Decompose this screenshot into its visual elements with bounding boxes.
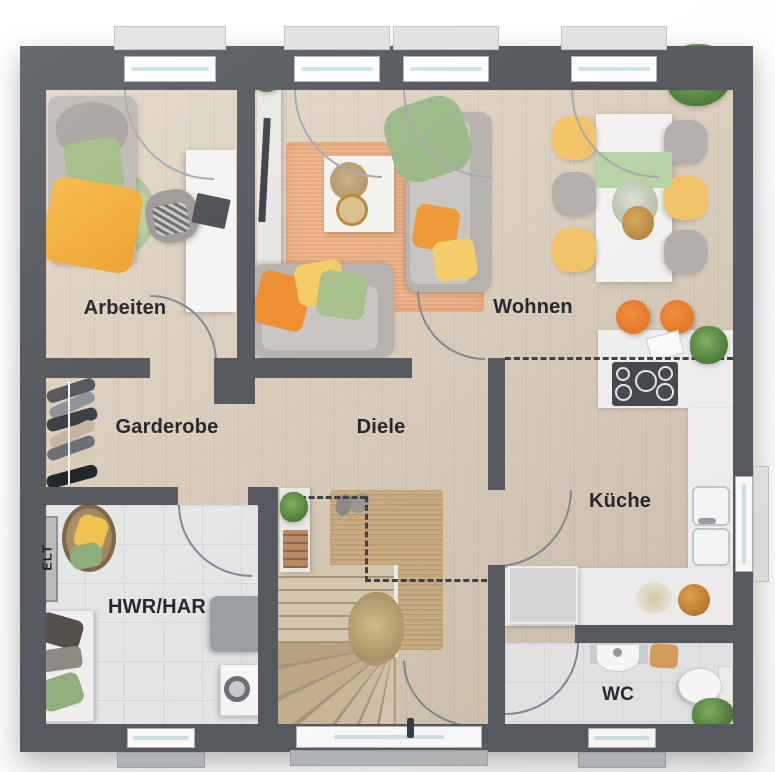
faucet: [698, 518, 716, 524]
fridge: [508, 566, 578, 624]
yellow-throw-blanket: [39, 175, 145, 276]
wall-kueche-wc: [575, 625, 733, 643]
basin-faucet: [613, 648, 622, 657]
bar-stool-orange: [616, 300, 650, 334]
burner: [656, 383, 674, 401]
window-sill: [561, 26, 667, 50]
coat-rack-rail: [68, 381, 70, 485]
entrance-door: [296, 726, 482, 748]
wall-diele-kueche-upper: [488, 358, 505, 490]
entrance-step: [290, 750, 488, 766]
yellow-pillow: [431, 237, 478, 282]
room-label-garderobe: Garderobe: [94, 416, 240, 439]
shelf-books: [283, 530, 308, 568]
window-glass: [742, 484, 746, 565]
window-wohnen-1: [294, 56, 380, 82]
wall-wohnen-diele: [255, 358, 412, 378]
window-glass: [301, 67, 373, 71]
chair-striped-cushion: [152, 201, 191, 236]
window-wc: [588, 728, 656, 748]
wall-diele-wc: [488, 565, 505, 725]
burner: [615, 384, 632, 401]
dining-chair-grey: [664, 230, 708, 274]
window-glass: [578, 67, 650, 71]
stair-opening-dashed-1: [300, 496, 366, 499]
window-kueche: [735, 476, 753, 572]
green-pillow: [315, 269, 369, 321]
window-glass: [594, 736, 651, 740]
room-label-diele: Diele: [318, 416, 444, 439]
gold-vase: [622, 206, 654, 240]
window-essen: [571, 56, 657, 82]
burner: [635, 370, 657, 392]
window-sill: [117, 752, 205, 768]
wall-arbeiten-garderobe: [46, 358, 150, 378]
wall-hwr-diele: [258, 487, 278, 724]
dining-chair-grey: [552, 172, 596, 216]
cooktop: [612, 362, 678, 406]
exterior-wall-left: [20, 46, 46, 752]
round-tray: [336, 194, 368, 226]
entrance-door-glass: [334, 735, 444, 739]
window-sill: [114, 26, 226, 50]
fruit-bowl: [678, 584, 710, 616]
door-handle: [407, 718, 414, 738]
window-sill: [753, 466, 769, 582]
stair-opening-dashed-3: [365, 579, 505, 582]
window-glass: [410, 67, 482, 71]
burner: [616, 367, 630, 381]
pampas-plant: [348, 592, 404, 666]
exterior-wall-right: [733, 46, 753, 752]
window-arbeiten: [124, 56, 216, 82]
dining-chair-yellow: [552, 228, 596, 272]
bar-stool-orange: [660, 300, 694, 334]
window-sill: [393, 26, 499, 50]
room-label-wohnen: Wohnen: [468, 296, 598, 319]
sink-basin-2: [692, 528, 730, 566]
room-label-kueche: Küche: [550, 490, 690, 513]
room-label-arbeiten: Arbeiten: [55, 297, 195, 320]
window-glass: [133, 736, 190, 740]
branch-decor: [636, 582, 672, 614]
window-glass: [131, 67, 208, 71]
floorplan-ground-floor: Arbeiten Wohnen Garderobe Diele Küche HW…: [0, 0, 775, 772]
window-hwr: [127, 728, 195, 748]
burner: [658, 366, 673, 381]
stair-opening-dashed-2: [365, 496, 368, 582]
room-label-wc: WC: [580, 684, 656, 706]
wall-arbeiten-wohnen: [237, 90, 255, 378]
window-sill: [284, 26, 390, 50]
label-elt: ELT: [40, 529, 55, 587]
wall-pillar-center: [214, 358, 255, 404]
window-sill: [578, 752, 666, 768]
wall-garderobe-hwr: [46, 487, 178, 505]
washing-machine-door: [224, 676, 250, 702]
wc-towel: [649, 643, 679, 669]
room-label-hwr: HWR/HAR: [84, 596, 230, 619]
window-wohnen-2: [403, 56, 489, 82]
